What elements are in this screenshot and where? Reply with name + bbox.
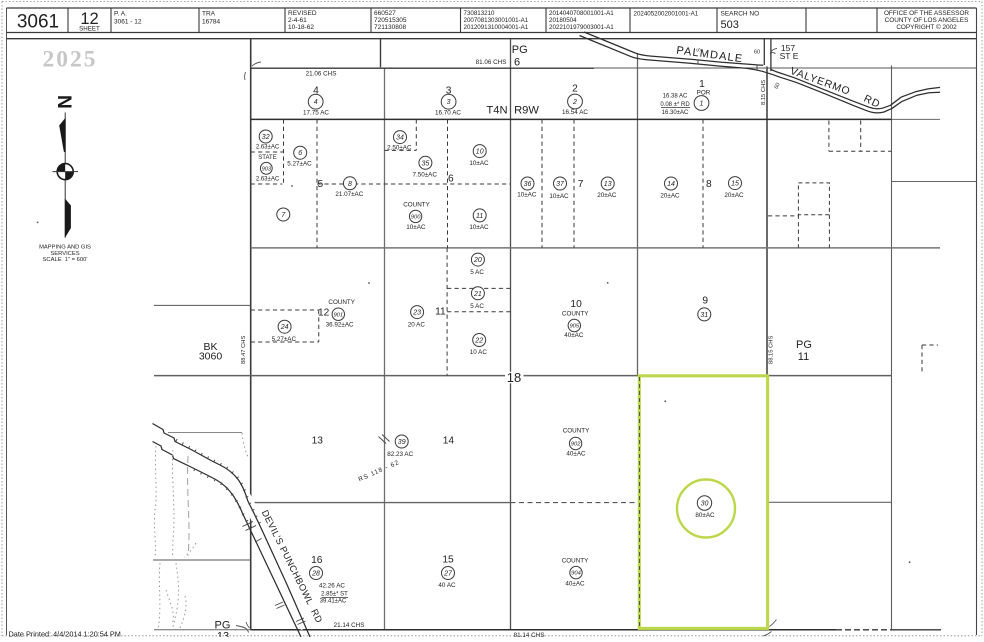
svg-text:18: 18 (507, 370, 521, 385)
svg-text:4: 4 (314, 99, 318, 106)
svg-text:COUNTY: COUNTY (562, 311, 589, 318)
svg-text:40 AC: 40 AC (438, 582, 456, 589)
svg-text:2: 2 (572, 99, 577, 106)
svg-text:3: 3 (447, 99, 451, 106)
svg-text:16784: 16784 (202, 19, 220, 26)
svg-text:5.27±AC: 5.27±AC (287, 161, 312, 168)
svg-text:P. A.: P. A. (114, 11, 127, 18)
svg-text:COPYRIGHT © 2002: COPYRIGHT © 2002 (896, 23, 957, 31)
svg-text:10 AC: 10 AC (470, 349, 488, 356)
svg-text:COUNTY OF LOS ANGELES: COUNTY OF LOS ANGELES (885, 17, 969, 24)
svg-text:2025: 2025 (43, 47, 98, 73)
svg-text:39.41±AC: 39.41±AC (320, 599, 347, 605)
svg-text:20±AC: 20±AC (724, 192, 744, 199)
svg-text:24: 24 (280, 324, 289, 331)
svg-text:11: 11 (798, 351, 809, 363)
svg-text:MAPPING AND GIS: MAPPING AND GIS (39, 245, 91, 251)
svg-text:TRA: TRA (202, 11, 216, 18)
svg-text:SCALE 1" = 600': SCALE 1" = 600' (43, 257, 88, 263)
svg-text:2014040708001001-A1: 2014040708001001-A1 (549, 10, 614, 17)
svg-text:6: 6 (448, 173, 454, 184)
svg-text:9: 9 (702, 296, 708, 307)
svg-text:22: 22 (474, 338, 483, 345)
svg-text:15: 15 (442, 555, 454, 566)
svg-text:8.15 CHS: 8.15 CHS (761, 80, 767, 105)
svg-text:16: 16 (311, 555, 323, 566)
svg-text:15: 15 (731, 181, 739, 188)
svg-text:3061: 3061 (17, 12, 59, 33)
svg-text:3060: 3060 (199, 350, 223, 362)
svg-text:5: 5 (317, 179, 323, 190)
svg-text:20±AC: 20±AC (660, 192, 680, 199)
svg-text:3061 - 12: 3061 - 12 (114, 19, 142, 26)
svg-text:14: 14 (667, 181, 675, 188)
svg-text:10: 10 (476, 149, 484, 156)
svg-text:PG: PG (796, 339, 812, 351)
svg-text:2.63±AC: 2.63±AC (256, 144, 280, 150)
svg-text:40±AC: 40±AC (564, 332, 584, 339)
svg-text:2024052002001001-A1: 2024052002001001-A1 (634, 10, 699, 17)
svg-text:904: 904 (571, 571, 581, 577)
svg-text:88.15 CHS: 88.15 CHS (769, 336, 775, 364)
svg-text:ST E: ST E (780, 51, 799, 61)
svg-text:903: 903 (262, 166, 272, 172)
svg-text:11: 11 (476, 213, 483, 220)
svg-text:R9W: R9W (514, 105, 539, 117)
svg-text:SHEET: SHEET (79, 26, 100, 33)
svg-text:STATE: STATE (258, 155, 276, 161)
svg-text:88.47 CHS: 88.47 CHS (241, 336, 247, 364)
svg-text:27: 27 (443, 571, 453, 578)
svg-text:7.50±AC: 7.50±AC (412, 172, 437, 179)
svg-text:720515305: 720515305 (374, 17, 407, 24)
svg-text:8: 8 (706, 179, 712, 190)
svg-text:21.06 CHS: 21.06 CHS (306, 71, 337, 78)
svg-text:721130808: 721130808 (374, 24, 406, 31)
svg-text:20180504: 20180504 (549, 17, 577, 24)
svg-text:503: 503 (721, 19, 739, 31)
svg-text:36.92±AC: 36.92±AC (326, 321, 354, 328)
svg-text:2-4-61: 2-4-61 (288, 17, 307, 24)
svg-text:901: 901 (333, 312, 343, 318)
svg-text:6: 6 (298, 150, 302, 157)
svg-text:10-18-62: 10-18-62 (288, 24, 314, 31)
svg-text:6: 6 (514, 57, 520, 69)
svg-text:34: 34 (396, 135, 404, 142)
svg-text:PG: PG (215, 619, 231, 631)
svg-text:20±AC: 20±AC (597, 192, 617, 199)
svg-text:16.38 AC: 16.38 AC (663, 94, 688, 100)
svg-text:8: 8 (348, 181, 352, 188)
svg-text:35: 35 (422, 160, 430, 167)
svg-text:5 AC: 5 AC (470, 269, 484, 276)
svg-text:2022101979003001-A1: 2022101979003001-A1 (549, 24, 614, 31)
svg-text:42.26 AC: 42.26 AC (319, 582, 345, 589)
svg-text:20 AC: 20 AC (408, 321, 426, 328)
svg-text:32: 32 (262, 134, 270, 141)
svg-text:7: 7 (578, 179, 584, 190)
svg-text:21.07±AC: 21.07±AC (335, 191, 363, 198)
svg-text:10±AC: 10±AC (469, 160, 489, 167)
svg-text:900: 900 (411, 214, 421, 220)
svg-text:23: 23 (412, 310, 421, 317)
svg-text:81.14 CHS: 81.14 CHS (514, 632, 545, 637)
svg-text:730813210: 730813210 (464, 10, 496, 17)
svg-text:10±AC: 10±AC (549, 193, 569, 200)
svg-text:OFFICE OF THE ASSESSOR: OFFICE OF THE ASSESSOR (884, 10, 969, 17)
svg-text:COUNTY: COUNTY (562, 558, 589, 565)
svg-text:REVISED: REVISED (288, 10, 317, 17)
svg-text:82.23 AC: 82.23 AC (387, 451, 413, 458)
svg-text:2.85±* ST: 2.85±* ST (321, 591, 348, 597)
svg-text:905: 905 (569, 324, 579, 330)
svg-text:POR: POR (697, 89, 711, 96)
svg-text:13: 13 (312, 436, 324, 447)
svg-text:40±AC: 40±AC (565, 580, 585, 587)
svg-text:39: 39 (398, 439, 406, 446)
svg-text:16.54 AC: 16.54 AC (562, 109, 588, 116)
svg-text:20: 20 (473, 257, 482, 264)
svg-text:1: 1 (700, 101, 704, 108)
svg-text:36: 36 (524, 181, 532, 188)
svg-text:2: 2 (572, 84, 578, 95)
svg-text:17.75 AC: 17.75 AC (303, 110, 329, 117)
svg-text:10±AC: 10±AC (406, 224, 426, 231)
svg-text:COUNTY: COUNTY (403, 202, 430, 209)
svg-text:16.70 AC: 16.70 AC (435, 110, 461, 117)
svg-text:14: 14 (443, 436, 455, 447)
svg-text:28: 28 (311, 571, 320, 578)
svg-text:21.14 CHS: 21.14 CHS (334, 622, 365, 629)
svg-text:81.06 CHS: 81.06 CHS (476, 59, 507, 66)
svg-text:T4N: T4N (486, 105, 507, 117)
svg-text:40±AC: 40±AC (566, 451, 586, 458)
svg-text:SEARCH NO: SEARCH NO (721, 10, 760, 17)
svg-text:13: 13 (217, 631, 229, 638)
svg-text:COUNTY: COUNTY (328, 299, 355, 306)
svg-text:660527: 660527 (374, 10, 396, 17)
svg-text:2.50±AC: 2.50±AC (387, 144, 412, 151)
svg-text:80±AC: 80±AC (695, 512, 715, 519)
svg-text:16.30±AC: 16.30±AC (662, 110, 689, 116)
svg-text:31: 31 (700, 312, 708, 319)
svg-text:12: 12 (318, 307, 330, 318)
svg-text:COUNTY: COUNTY (563, 428, 590, 435)
svg-text:0.08 ±* RD: 0.08 ±* RD (660, 102, 690, 108)
svg-text:2007081303001001-A1: 2007081303001001-A1 (464, 17, 529, 24)
svg-text:PG: PG (512, 44, 528, 56)
svg-text:5 AC: 5 AC (470, 303, 484, 310)
svg-text:10±AC: 10±AC (469, 224, 489, 231)
svg-text:2.63±AC: 2.63±AC (256, 176, 280, 182)
svg-text:N: N (53, 95, 74, 109)
svg-text:SERVICES: SERVICES (50, 251, 79, 257)
svg-text:13: 13 (604, 181, 612, 188)
svg-text:21: 21 (473, 291, 482, 298)
svg-text:902: 902 (571, 442, 581, 448)
svg-text:Date Printed: 4/4/2014 1:20:54: Date Printed: 4/4/2014 1:20:54 PM (9, 630, 121, 637)
svg-text:37: 37 (556, 181, 565, 188)
svg-text:30: 30 (701, 501, 709, 508)
svg-text:10±AC: 10±AC (517, 191, 537, 198)
svg-text:5.27±AC: 5.27±AC (272, 336, 297, 343)
svg-text:11: 11 (435, 306, 446, 317)
svg-text:10: 10 (570, 299, 582, 310)
svg-text:S: S (697, 48, 703, 52)
svg-text:60: 60 (754, 50, 760, 56)
svg-text:2012091310004001-A1: 2012091310004001-A1 (464, 24, 529, 31)
